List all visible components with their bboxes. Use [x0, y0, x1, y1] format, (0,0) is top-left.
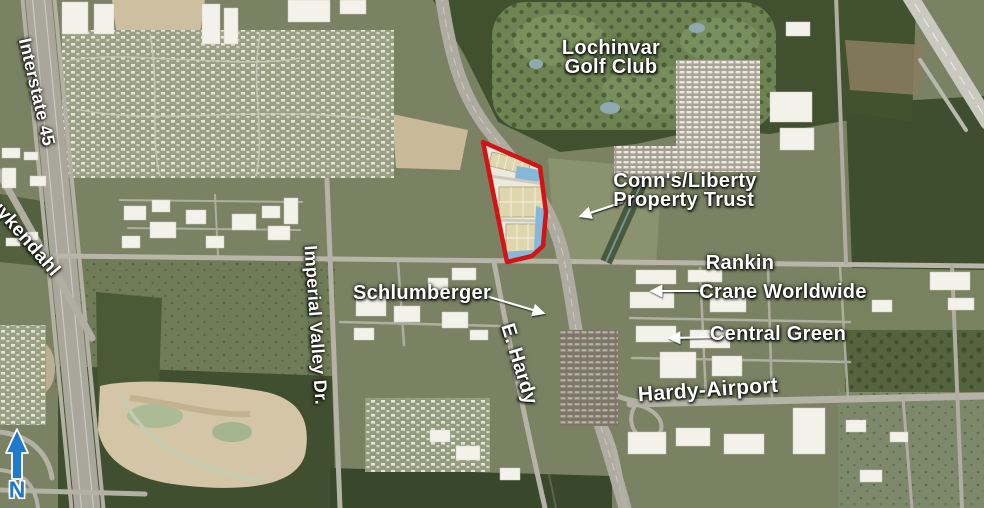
central-green-arrow — [670, 337, 715, 338]
label-schlumberger: Schlumberger — [353, 283, 491, 303]
label-lochinvar-golf-club: Lochinvar Golf Club — [562, 39, 660, 77]
label-conns-line2: Property Trust — [613, 191, 756, 210]
label-conns-liberty-property-trust: Conn's/Liberty Property Trust — [613, 172, 756, 210]
aerial-map: Interstate 45 Kuykendahl Lochinvar Golf … — [0, 0, 984, 508]
label-crane-worldwide: Crane Worldwide — [699, 282, 867, 302]
label-rankin: Rankin — [706, 253, 774, 273]
satellite-imagery — [0, 0, 984, 508]
north-label: N — [9, 479, 26, 502]
label-central-green: Central Green — [710, 324, 846, 344]
label-lochinvar-line2: Golf Club — [562, 58, 660, 77]
